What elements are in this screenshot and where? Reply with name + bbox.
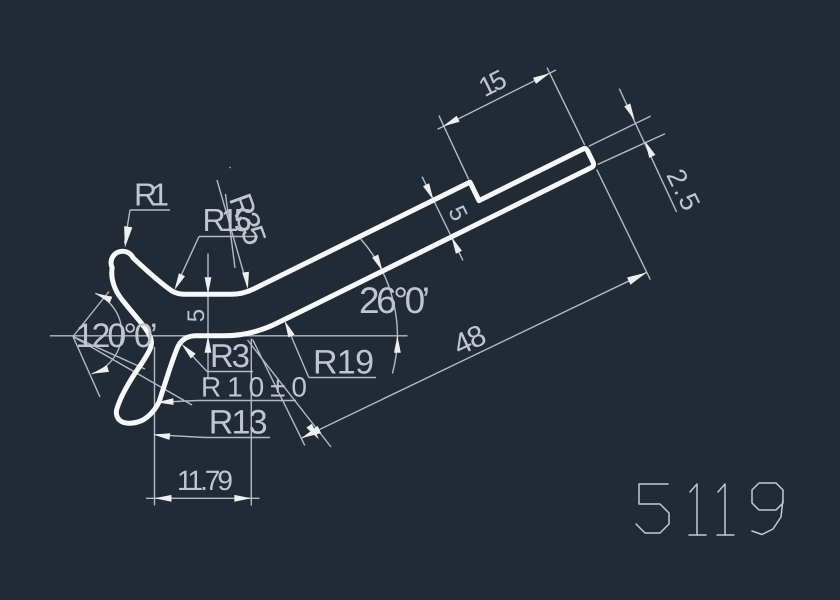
svg-text:120°0’: 120°0’ [76, 317, 158, 355]
svg-text:R19: R19 [313, 344, 374, 382]
svg-text:26°0’: 26°0’ [359, 280, 430, 321]
svg-text:R10±0: R10±0 [201, 372, 307, 403]
svg-text:R3: R3 [210, 337, 250, 374]
svg-text:R13: R13 [209, 404, 268, 442]
svg-text:5: 5 [183, 309, 210, 322]
svg-text:R1: R1 [134, 177, 169, 213]
svg-text:11.79: 11.79 [177, 465, 233, 496]
